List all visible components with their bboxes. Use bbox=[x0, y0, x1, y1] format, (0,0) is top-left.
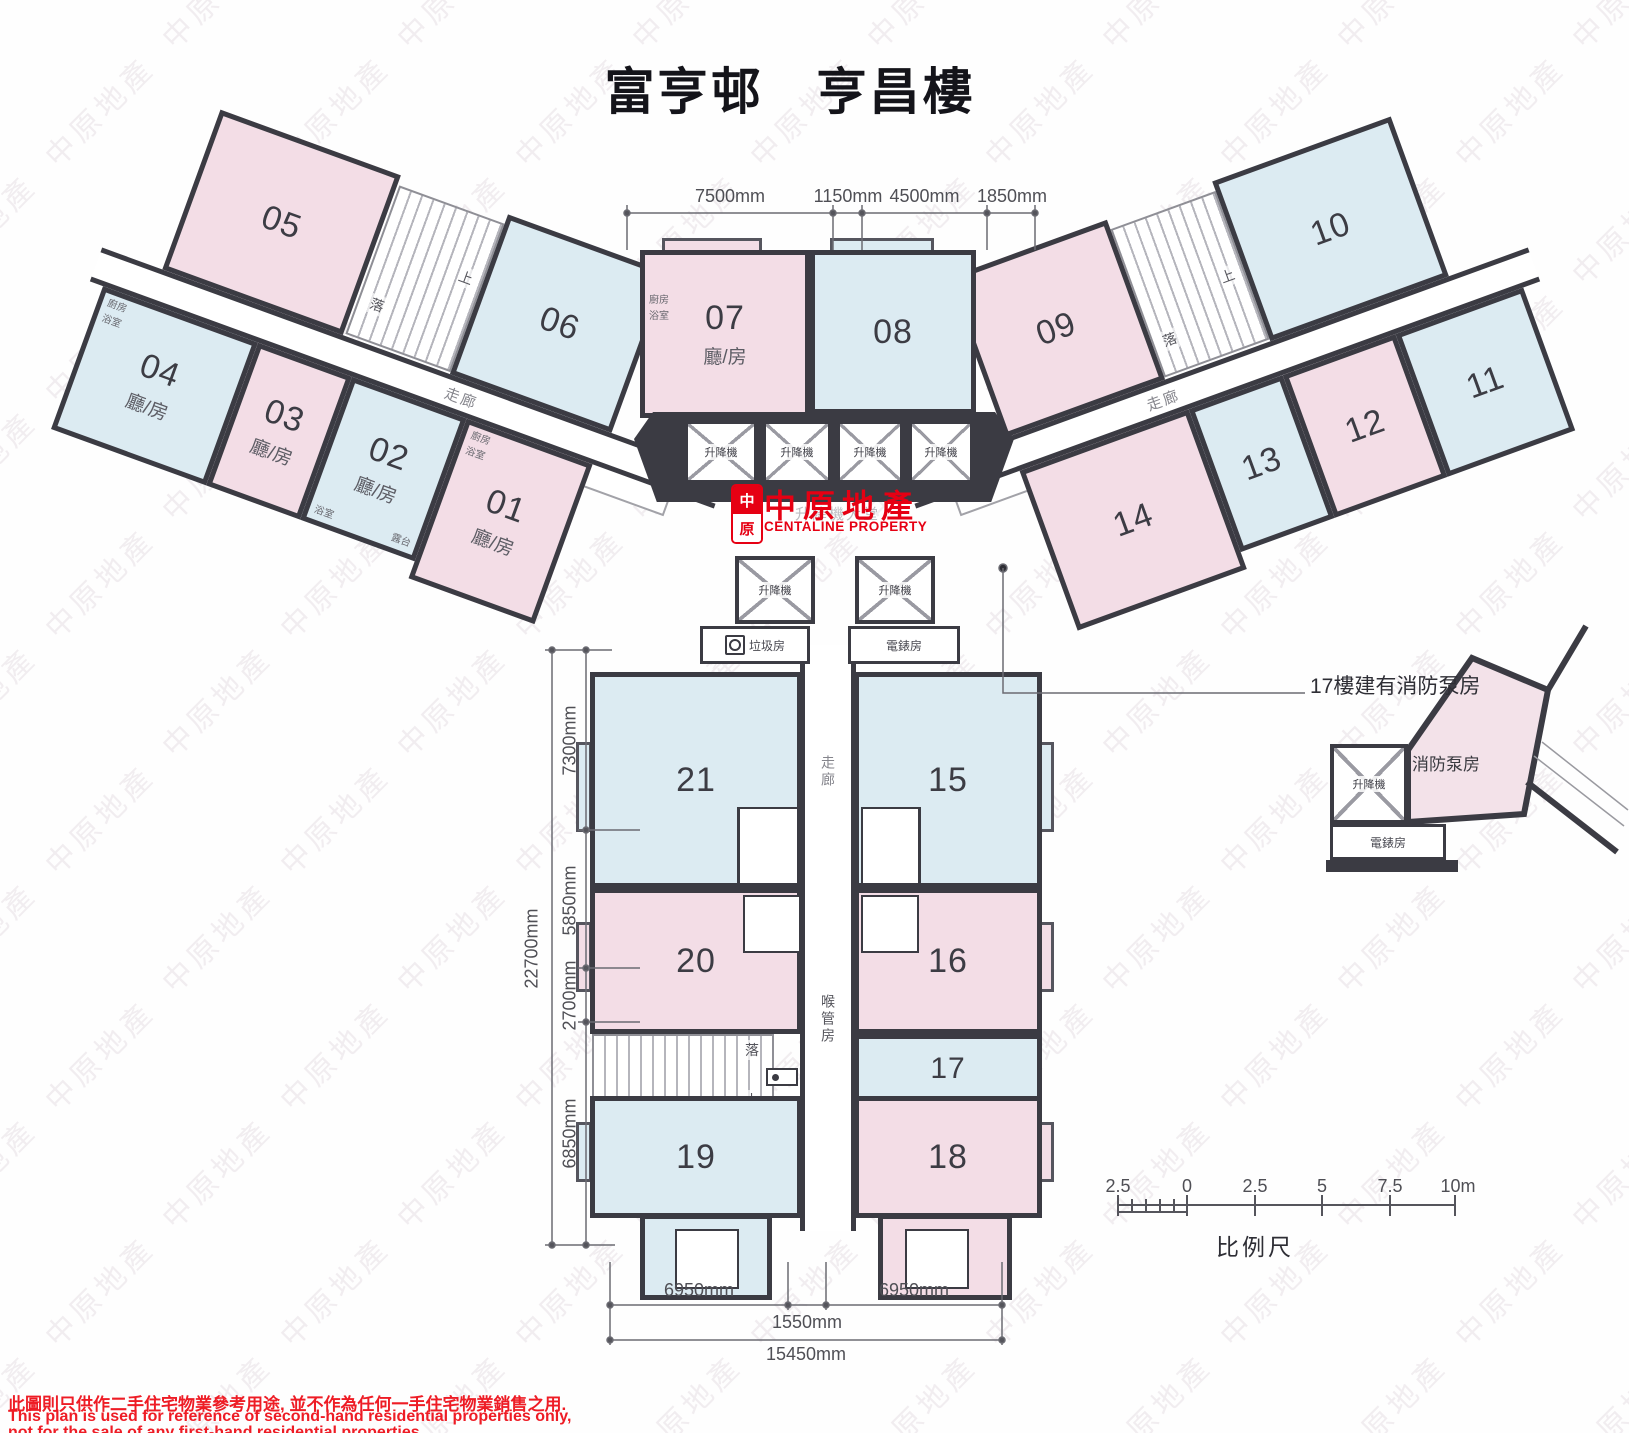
watermark-text: 中原地產 bbox=[150, 1107, 280, 1237]
watermark-text: 中原地產 bbox=[150, 871, 280, 1001]
dim-left-total: 22700mm bbox=[522, 889, 543, 1009]
unit-21: 21 bbox=[590, 672, 802, 888]
corridor-label: 走廊 bbox=[1144, 384, 1183, 415]
kitchen-label: 廚房 bbox=[469, 430, 492, 447]
watermark-text: 中原地產 bbox=[1325, 1343, 1455, 1433]
lift-label: 升降機 bbox=[780, 444, 815, 460]
pipe-dot-icon bbox=[772, 1074, 779, 1081]
watermark-text: 中原地產 bbox=[1560, 1343, 1629, 1433]
unit-number: 18 bbox=[928, 1138, 968, 1177]
dim-bottom-2: 1550mm bbox=[767, 1312, 847, 1333]
scale-tick-3: 5 bbox=[1302, 1176, 1342, 1197]
refuse-room-label: 垃圾房 bbox=[749, 637, 785, 654]
watermark-text: 中原地產 bbox=[1560, 635, 1629, 765]
lift-2: 升降機 bbox=[762, 420, 832, 484]
balcony-label: 露台 bbox=[390, 532, 413, 549]
lift-label: 升降機 bbox=[704, 444, 739, 460]
dim-bottom-3: 6950mm bbox=[826, 1280, 1002, 1301]
bathroom-label: 浴室 bbox=[649, 311, 669, 322]
living-room-label: 廳/房 bbox=[703, 342, 746, 369]
watermark-text: 中原地產 bbox=[0, 0, 45, 57]
unit-18: 18 bbox=[854, 1096, 1042, 1218]
dim-bottom-1: 6950mm bbox=[610, 1280, 788, 1301]
unit-16: 16 bbox=[854, 888, 1042, 1034]
unit-number: 16 bbox=[928, 942, 968, 981]
centaline-logo-en: CENTALINE PROPERTY bbox=[764, 519, 927, 534]
dim-left-4: 6850mm bbox=[560, 1074, 581, 1194]
watermark-text: 中原地產 bbox=[0, 163, 45, 293]
watermark-text: 中原地產 bbox=[1325, 0, 1455, 57]
lift-label: 升降機 bbox=[924, 444, 959, 460]
scale-tick-0: 2.5 bbox=[1098, 1176, 1138, 1197]
unit-20: 20 bbox=[590, 888, 802, 1034]
watermark-text: 中原地產 bbox=[0, 399, 45, 529]
lift-5: 升降機 bbox=[735, 556, 815, 624]
scale-tick-2: 2.5 bbox=[1235, 1176, 1275, 1197]
unit-number: 19 bbox=[676, 1138, 716, 1177]
bathroom-label: 浴室 bbox=[313, 504, 336, 521]
stair-up-label: 上 bbox=[455, 266, 477, 290]
refuse-drum-icon bbox=[729, 639, 741, 651]
unit-number: 21 bbox=[676, 761, 716, 800]
unit-15: 15 bbox=[854, 672, 1042, 888]
watermark-text: 中原地產 bbox=[150, 635, 280, 765]
entrance-alcove bbox=[743, 895, 801, 953]
watermark-text: 中原地產 bbox=[1560, 1107, 1629, 1237]
unit-07: 廚房 浴室 07 廳/房 bbox=[640, 250, 810, 418]
unit-17: 17 bbox=[854, 1034, 1042, 1104]
unit-number: 13 bbox=[1236, 438, 1287, 488]
dim-bottom-total: 15450mm bbox=[706, 1344, 906, 1365]
watermark-text: 中原地產 bbox=[855, 0, 985, 57]
fire-pump-note: 17樓建有消防泵房 bbox=[1310, 670, 1480, 700]
disclaimer-en-2: not for the sale of any first-hand resid… bbox=[8, 1424, 424, 1433]
lift-6: 升降機 bbox=[855, 556, 935, 624]
kitchen-label: 廚房 bbox=[106, 298, 129, 315]
dim-top-3: 4500mm bbox=[862, 186, 987, 207]
watermark-text: 中原地產 bbox=[385, 635, 515, 765]
watermark-text: 中原地產 bbox=[620, 0, 750, 57]
unit-number: 10 bbox=[1305, 204, 1356, 254]
dim-left-1: 7300mm bbox=[560, 681, 581, 801]
watermark-text: 中原地產 bbox=[1208, 989, 1338, 1119]
meter-room-label: 電錶房 bbox=[1370, 834, 1406, 851]
watermark-text: 中原地產 bbox=[0, 1107, 45, 1237]
stair-down-label: 落 bbox=[1159, 327, 1181, 351]
unit-number: 15 bbox=[928, 761, 968, 800]
entrance-alcove bbox=[861, 895, 919, 953]
entrance-alcove bbox=[737, 807, 799, 885]
watermark-text: 中原地產 bbox=[1325, 871, 1455, 1001]
watermark-text: 中原地產 bbox=[0, 635, 45, 765]
meter-room: 電錶房 bbox=[848, 626, 960, 664]
entrance-alcove bbox=[861, 807, 921, 885]
kitchen-label: 廚房 bbox=[649, 295, 669, 306]
logo-mark-top: 中 bbox=[733, 486, 761, 514]
lower-wing-corridor: 走廊 喉管房 bbox=[800, 645, 856, 1231]
watermark-text: 中原地產 bbox=[1560, 163, 1629, 293]
scale-tick-1: 0 bbox=[1167, 1176, 1207, 1197]
unit-number: 07 bbox=[705, 299, 745, 338]
unit-number: 06 bbox=[534, 298, 585, 348]
unit-number: 11 bbox=[1461, 357, 1509, 406]
watermark-text: 中原地產 bbox=[150, 0, 280, 57]
unit-number: 12 bbox=[1340, 401, 1391, 451]
corridor-label: 走廊 bbox=[442, 382, 481, 413]
lift-label: 升降機 bbox=[878, 582, 913, 598]
lift-4: 升降機 bbox=[908, 420, 974, 484]
stair-up-label: 上 bbox=[1217, 264, 1239, 288]
logo-mark-bottom: 原 bbox=[733, 514, 761, 542]
watermark-text: 中原地產 bbox=[1560, 0, 1629, 57]
watermark-text: 中原地產 bbox=[1090, 1343, 1220, 1433]
unit-number: 17 bbox=[930, 1052, 965, 1086]
watermark-text: 中原地產 bbox=[33, 45, 163, 175]
watermark-text: 中原地產 bbox=[33, 1225, 163, 1355]
pipe-duct-icon bbox=[766, 1068, 798, 1086]
watermark-text: 中原地產 bbox=[1090, 0, 1220, 57]
bathroom-label: 浴室 bbox=[100, 313, 123, 330]
unit-number: 20 bbox=[676, 942, 716, 981]
centaline-logo-mark: 中 原 bbox=[731, 484, 763, 544]
watermark-text: 中原地產 bbox=[1443, 1225, 1573, 1355]
lift-label: 升降機 bbox=[758, 582, 793, 598]
lift-label: 升降機 bbox=[1352, 776, 1387, 792]
dim-left-3: 2700mm bbox=[560, 936, 581, 1056]
lift-3: 升降機 bbox=[836, 420, 904, 484]
unit-19: 19 bbox=[590, 1096, 802, 1218]
meter-room-detail: 電錶房 bbox=[1330, 824, 1446, 860]
unit-number: 14 bbox=[1108, 495, 1159, 545]
meter-room-label: 電錶房 bbox=[886, 637, 922, 654]
watermark-text: 中原地產 bbox=[385, 871, 515, 1001]
watermark-text: 中原地產 bbox=[1443, 989, 1573, 1119]
pipe-duct-room-label: 喉管房 bbox=[818, 994, 838, 1045]
scale-tick-5: 10m bbox=[1435, 1176, 1481, 1197]
watermark-text: 中原地產 bbox=[33, 517, 163, 647]
refuse-room: 垃圾房 bbox=[700, 626, 810, 664]
lift-7: 升降機 bbox=[1330, 744, 1408, 824]
watermark-text: 中原地產 bbox=[1090, 871, 1220, 1001]
lift-label: 升降機 bbox=[853, 444, 888, 460]
scale-tick-4: 7.5 bbox=[1370, 1176, 1410, 1197]
unit-number: 08 bbox=[873, 313, 913, 352]
dim-top-1: 7500mm bbox=[627, 186, 833, 207]
bathroom-label: 浴室 bbox=[464, 445, 487, 462]
watermark-text: 中原地產 bbox=[33, 989, 163, 1119]
stair-down-label: 落 bbox=[744, 1040, 760, 1060]
watermark-text: 中原地產 bbox=[33, 753, 163, 883]
watermark-text: 中原地產 bbox=[385, 1107, 515, 1237]
watermark-text: 中原地產 bbox=[1090, 1107, 1220, 1237]
dim-top-4: 1850mm bbox=[972, 186, 1052, 207]
fire-pump-room-label: 消防泵房 bbox=[1412, 750, 1532, 775]
watermark-text: 中原地產 bbox=[268, 1225, 398, 1355]
watermark-text: 中原地產 bbox=[1325, 1107, 1455, 1237]
watermark-text: 中原地產 bbox=[268, 989, 398, 1119]
detail-base-wall bbox=[1326, 860, 1458, 872]
watermark-text: 中原地產 bbox=[385, 0, 515, 57]
unit-number: 09 bbox=[1031, 304, 1082, 354]
watermark-text: 中原地產 bbox=[1090, 635, 1220, 765]
floor-plan-page: 中原地產中原地產中原地產中原地產中原地產中原地產中原地產中原地產中原地產中原地產… bbox=[0, 0, 1629, 1433]
watermark-text: 中原地產 bbox=[1560, 871, 1629, 1001]
watermark-text: 中原地產 bbox=[268, 753, 398, 883]
unit-08: 08 bbox=[810, 250, 976, 414]
watermark-text: 中原地產 bbox=[1208, 753, 1338, 883]
unit-number: 05 bbox=[256, 197, 307, 247]
page-title: 富亨邨 亨昌樓 bbox=[560, 52, 1020, 124]
watermark-text: 中原地產 bbox=[1443, 517, 1573, 647]
scale-bar-label: 比例尺 bbox=[1200, 1228, 1310, 1262]
stair-down-label: 落 bbox=[366, 293, 388, 317]
watermark-text: 中原地產 bbox=[0, 871, 45, 1001]
refuse-room-icon bbox=[725, 635, 745, 655]
lift-1: 升降機 bbox=[684, 420, 758, 484]
corridor-label: 走廊 bbox=[818, 755, 838, 789]
